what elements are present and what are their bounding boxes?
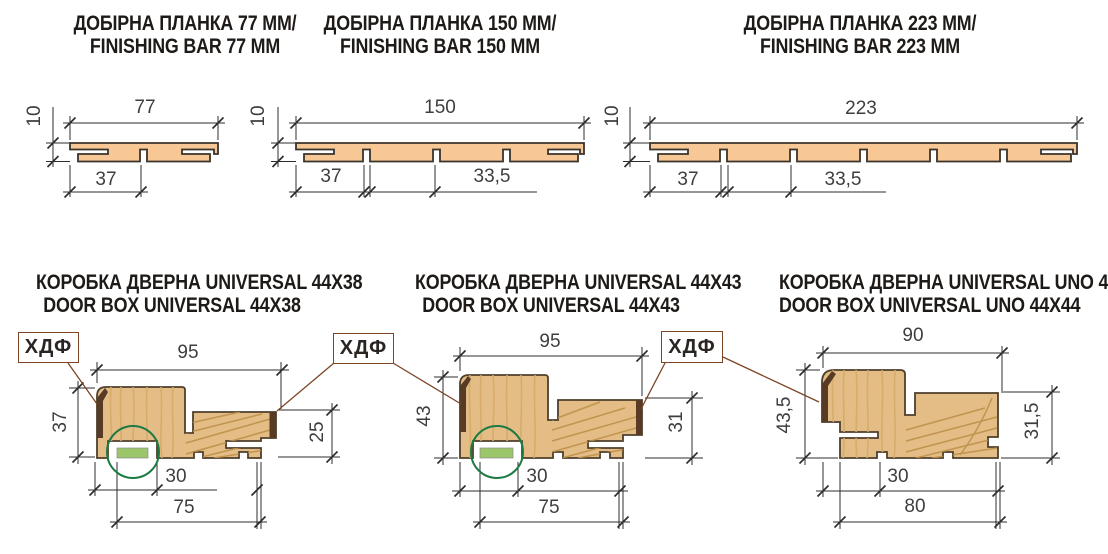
hdf-callout-label: ХДФ <box>340 337 387 360</box>
title-box4444-en: DOOR BOX UNIVERSAL UNO 44X44 <box>779 294 1051 318</box>
hdf-cap-right <box>270 412 277 438</box>
title-bar223-en: FINISHING BAR 223 MM <box>724 35 996 59</box>
title-bar77-uk: ДОБІРНА ПЛАНКА 77 ММ/ <box>49 12 321 36</box>
dim-label-tongue: 37 <box>95 169 116 191</box>
title-box4438-en: DOOR BOX UNIVERSAL 44X38 <box>36 294 308 318</box>
finishing-bar-150-profile <box>296 143 584 162</box>
title-bar150-en: FINISHING BAR 150 MM <box>304 35 576 59</box>
dim-label-thickness: 10 <box>248 105 270 126</box>
dim-label-right: 31 <box>666 411 688 432</box>
title-box4444-uk: КОРОБКА ДВЕРНА UNIVERSAL UNO 44X44 <box>779 271 1051 295</box>
dim-label-top: 95 <box>539 331 560 353</box>
dim-label-bottom: 75 <box>173 497 194 519</box>
hdf-callout-label: ХДФ <box>25 336 72 359</box>
title-bar223-uk: ДОБІРНА ПЛАНКА 223 ММ/ <box>724 12 996 36</box>
hdf-cap-right <box>636 400 643 435</box>
hdf-callout: ХДФ <box>333 333 394 364</box>
title-box4438-uk: КОРОБКА ДВЕРНА UNIVERSAL 44X38 <box>36 271 308 295</box>
dim-label-left: 43,5 <box>774 397 796 434</box>
dim-label-right: 25 <box>307 421 329 442</box>
dim-label-tongue: 37 <box>320 166 341 188</box>
dim-label-seal: 30 <box>887 466 908 488</box>
technical-drawing-sheet: ДОБІРНА ПЛАНКА 77 ММ/ FINISHING BAR 77 M… <box>0 0 1108 554</box>
title-box4443-en: DOOR BOX UNIVERSAL 44X43 <box>415 294 687 318</box>
dim-label-bottom: 80 <box>904 496 925 518</box>
finishing-bar-223-profile <box>650 143 1077 162</box>
dim-label-left: 37 <box>50 411 72 432</box>
hdf-callout-label: ХДФ <box>668 336 715 359</box>
dim-label-top: 95 <box>177 342 198 364</box>
dim-label-left: 43 <box>414 405 436 426</box>
dim-label-tongue: 37 <box>677 169 698 191</box>
door-box-uno-4444-profile <box>822 369 998 459</box>
dim-label-top: 90 <box>902 325 923 347</box>
dim-label-width-223: 223 <box>845 98 877 120</box>
finishing-bar-77-profile <box>70 143 218 162</box>
dim-label-thickness: 10 <box>24 105 46 126</box>
title-bar77-en: FINISHING BAR 77 MM <box>49 35 321 59</box>
dim-label-spacing: 33,5 <box>474 166 511 188</box>
dim-label-seal: 30 <box>165 466 186 488</box>
title-box4443-uk: КОРОБКА ДВЕРНА UNIVERSAL 44X43 <box>415 271 687 295</box>
dim-label-bottom: 75 <box>538 497 559 519</box>
seal-gasket <box>117 448 148 458</box>
dim-label-thickness: 10 <box>602 105 624 126</box>
hdf-callout: ХДФ <box>661 331 723 363</box>
door-box-4443-profile <box>460 374 643 459</box>
hdf-callout: ХДФ <box>18 332 79 363</box>
dim-label-spacing: 33,5 <box>825 169 862 191</box>
seal-gasket <box>480 448 513 458</box>
title-bar150-uk: ДОБІРНА ПЛАНКА 150 ММ/ <box>304 12 576 36</box>
dim-label-width-77: 77 <box>134 97 155 119</box>
dim-label-seal: 30 <box>526 466 547 488</box>
dim-label-width-150: 150 <box>424 97 456 119</box>
door-box-4438-profile <box>97 386 277 459</box>
dim-label-right: 31,5 <box>1022 403 1044 440</box>
